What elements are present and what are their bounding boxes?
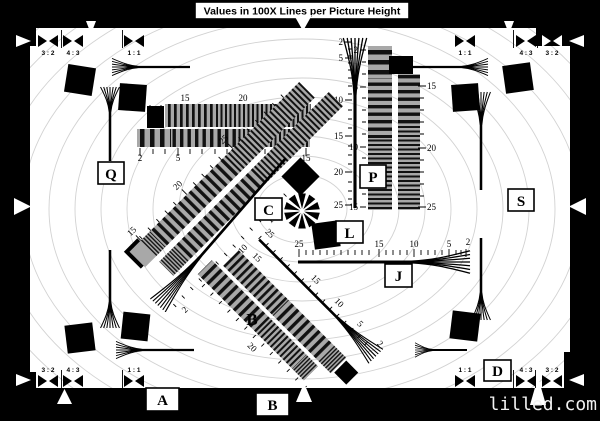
ratio-label: 3 : 2 — [41, 367, 54, 374]
v-center-label: 2 — [339, 37, 344, 47]
marker-label-l: L — [344, 226, 354, 242]
calibration-square — [389, 56, 413, 74]
j-label: 2 — [466, 237, 471, 247]
p-right-label: 20 — [427, 143, 437, 153]
v-center-label: 25 — [334, 200, 344, 210]
ratio-label: 3 : 2 — [545, 367, 558, 374]
chart-canvas: 15 20 25 2 5 15 2 5 10 15 20 25 2 5 10 1… — [0, 0, 600, 421]
h-top-label: 20 — [239, 93, 249, 103]
j-label: 15 — [375, 239, 385, 249]
p-left-label: 2 — [354, 45, 359, 55]
p-right-label: 15 — [427, 81, 437, 91]
marker-label-s: S — [517, 194, 525, 210]
ratio-label: 1 : 1 — [127, 50, 140, 57]
marker-label-p: P — [368, 170, 377, 186]
marker-label-d: D — [492, 364, 503, 380]
ratio-label: 4 : 3 — [519, 50, 532, 57]
j-label: 5 — [447, 239, 452, 249]
h-top-label: 15 — [181, 93, 191, 103]
j-label: 10 — [410, 239, 420, 249]
ratio-label: 3 : 2 — [545, 50, 558, 57]
ratio-label: 4 : 3 — [66, 367, 79, 374]
ratio-label: 4 : 3 — [66, 50, 79, 57]
marker-label-q: Q — [105, 167, 117, 183]
ratio-label: 4 : 3 — [519, 367, 532, 374]
p-right-label: 25 — [427, 202, 437, 212]
marker-label-b: B — [267, 398, 277, 414]
ratio-label: 1 : 1 — [127, 367, 140, 374]
j-label: 25 — [295, 239, 305, 249]
h-bottom-label: 5 — [176, 153, 181, 163]
ratio-label: 1 : 1 — [458, 50, 471, 57]
calibration-square — [147, 106, 164, 128]
h-bottom-label: 2 — [138, 153, 143, 163]
p-left-label: 10 — [349, 142, 359, 152]
v-center-label: 20 — [334, 167, 344, 177]
ratio-label: 3 : 2 — [41, 50, 54, 57]
marker-label-c: C — [263, 203, 274, 219]
resolution-test-chart: 15 20 25 2 5 15 2 5 10 15 20 25 2 5 10 1… — [0, 0, 600, 421]
p-left-label: 15 — [349, 202, 359, 212]
ratio-label: 1 : 1 — [458, 367, 471, 374]
p-left-label: 5 — [354, 82, 359, 92]
v-center-label: 15 — [334, 131, 344, 141]
v-center-label: 5 — [339, 53, 344, 63]
watermark: lilled.com — [489, 394, 597, 415]
marker-label-j: J — [395, 269, 403, 285]
marker-label-a: A — [157, 393, 168, 409]
marker-label-b-plain: B — [246, 310, 257, 329]
